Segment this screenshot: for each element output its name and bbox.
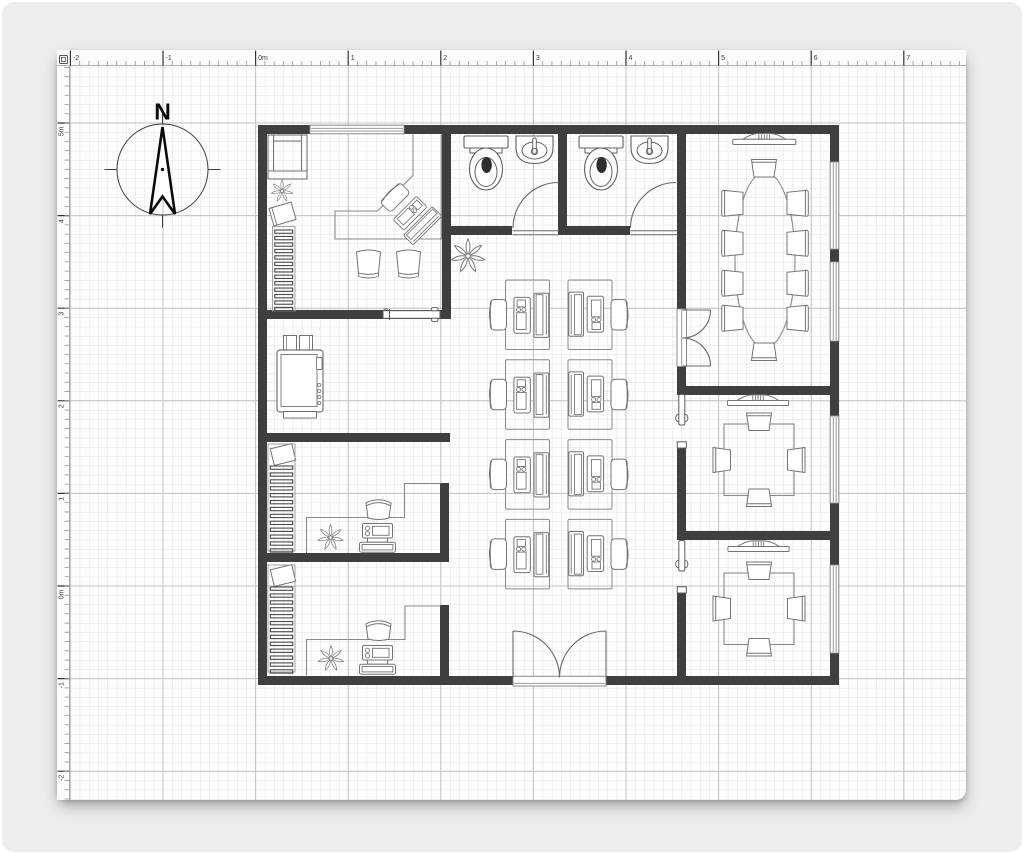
svg-text:-1: -1 <box>166 55 172 62</box>
svg-text:2: 2 <box>59 404 66 408</box>
svg-text:4: 4 <box>59 219 66 223</box>
svg-text:3: 3 <box>59 312 66 316</box>
svg-text:5: 5 <box>721 55 725 62</box>
svg-text:0m: 0m <box>258 55 268 62</box>
svg-text:3: 3 <box>536 55 540 62</box>
svg-text:6: 6 <box>814 55 818 62</box>
svg-text:N: N <box>154 99 171 125</box>
svg-text:1: 1 <box>59 497 66 501</box>
svg-text:-2: -2 <box>59 775 66 781</box>
svg-text:-2: -2 <box>73 55 79 62</box>
svg-text:1: 1 <box>351 55 355 62</box>
svg-text:7: 7 <box>906 55 910 62</box>
svg-text:0m: 0m <box>59 589 66 599</box>
svg-text:5m: 5m <box>59 126 66 136</box>
svg-text:4: 4 <box>629 55 633 62</box>
svg-text:-1: -1 <box>59 682 66 688</box>
svg-text:2: 2 <box>443 55 447 62</box>
